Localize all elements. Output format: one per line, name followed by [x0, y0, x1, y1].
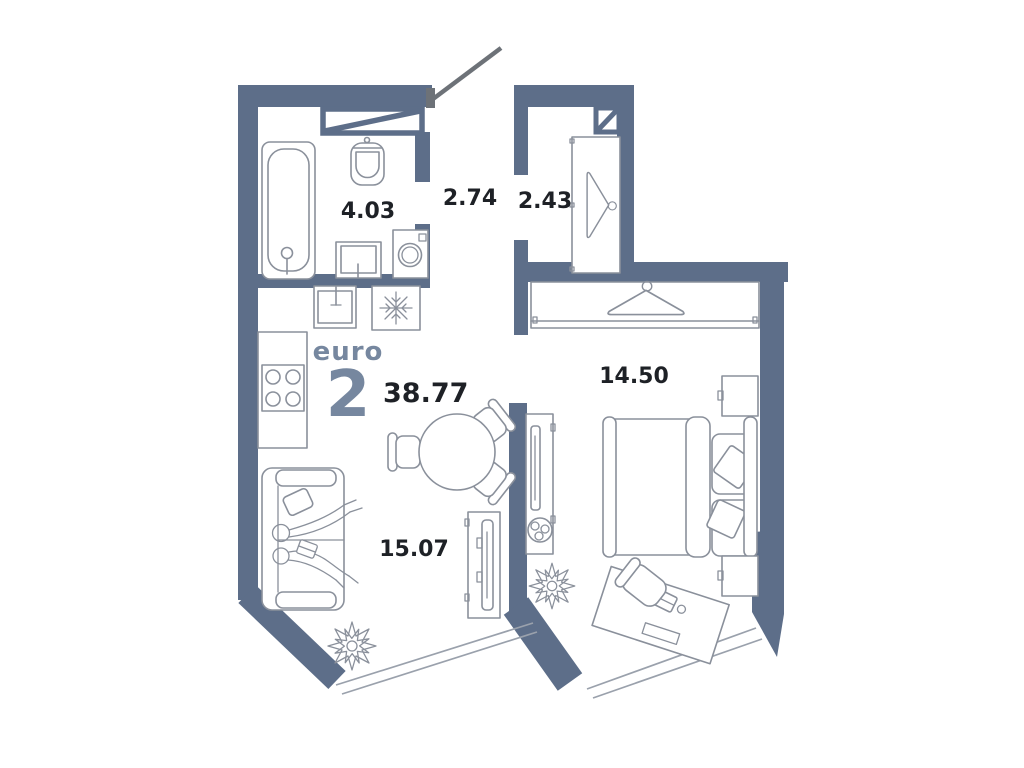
plant-icon [529, 563, 575, 609]
closet [531, 281, 759, 328]
toilet-icon [351, 138, 384, 186]
washbasin-icon [336, 242, 381, 278]
bedroom-area-label: 14.50 [599, 364, 669, 389]
tv-stand-icon [526, 414, 555, 554]
bathtub-icon [262, 142, 315, 279]
brand-rooms-number: 2 [326, 358, 371, 432]
vent-shaft-icon [596, 108, 619, 132]
stove-icon [258, 332, 307, 448]
tv-icon [531, 426, 540, 510]
wardrobe-area-label: 2.43 [518, 189, 572, 214]
hallway-area-label: 2.74 [443, 186, 497, 211]
tv-stand-icon [465, 512, 500, 618]
living-area-label: 15.07 [379, 537, 449, 562]
fridge-snowflake-icon [372, 286, 420, 330]
nightstand-icon [718, 556, 758, 596]
bathroom-area-label: 4.03 [341, 199, 395, 224]
floor-plan-page: 4.03 2.74 2.43 14.50 15.07 euro 2 38.77 [0, 0, 1024, 768]
floor-plan-svg: 4.03 2.74 2.43 14.50 15.07 euro 2 38.77 [0, 0, 1024, 768]
hanger-icon [608, 281, 684, 314]
wardrobe-cabinet [570, 137, 620, 273]
chair-icon [388, 433, 420, 471]
door-swing-icon [433, 48, 501, 99]
dining-table-icon [388, 398, 517, 507]
nightstand-icon [718, 376, 758, 416]
plant-icon [328, 622, 376, 670]
vent-shaft-icon [323, 109, 422, 133]
washing-machine-icon [393, 230, 428, 278]
total-area-label: 38.77 [383, 378, 468, 409]
kitchen-sink-icon [314, 286, 356, 328]
bed-icon [603, 417, 757, 557]
